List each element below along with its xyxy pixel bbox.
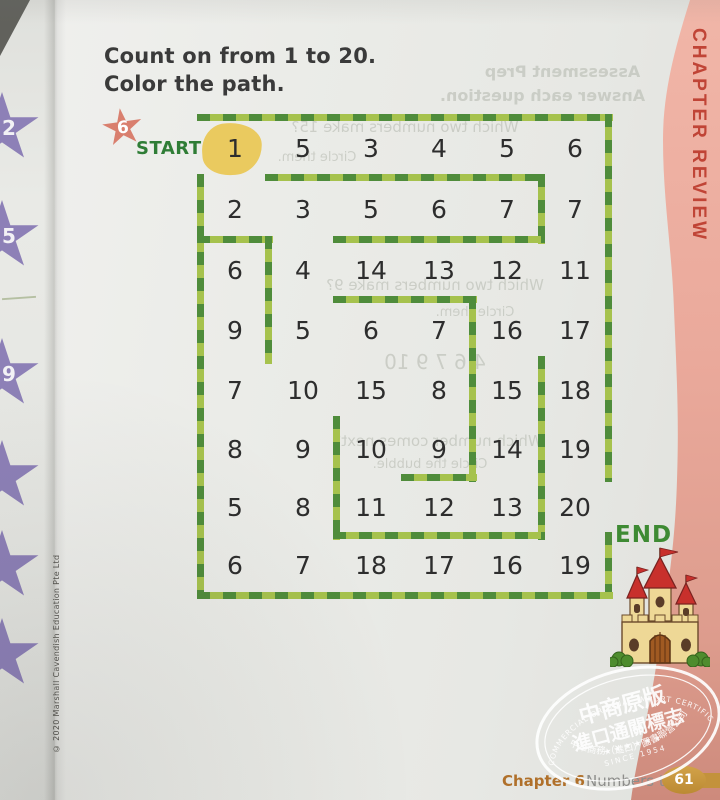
maze-cell-r3c3: 14 (337, 240, 405, 300)
maze-cell-r5c1: 7 (201, 360, 269, 420)
maze-cell-r8c2: 7 (269, 536, 337, 595)
maze-grid: 1534562356776414131211956716177101581518… (201, 118, 609, 595)
maze-cell-r1c3: 3 (337, 118, 405, 178)
copyright-text: © 2020 Marshall Cavendish Education Pte … (52, 588, 65, 753)
edge-star: 5 (0, 200, 40, 272)
maze-cell-r1c5: 5 (473, 118, 541, 178)
edge-line (2, 296, 36, 300)
maze-cell-r2c6: 7 (541, 178, 609, 240)
edge-star: 2 (0, 92, 40, 164)
maze-cell-r4c1: 9 (201, 300, 269, 360)
maze-cell-r4c4: 7 (405, 300, 473, 360)
number-maze: 1534562356776414131211956716177101581518… (201, 118, 609, 595)
maze-cell-r8c6: 19 (541, 536, 609, 595)
maze-cell-r7c4: 12 (405, 478, 473, 536)
maze-cell-r4c2: 5 (269, 300, 337, 360)
page-number: 61 (674, 772, 693, 788)
edge-star (0, 618, 40, 690)
edge-star: 9 (0, 338, 40, 410)
scanned-workbook-page: 259 © 2020 Marshall Cavendish Education … (0, 0, 720, 800)
page-title-line2: Color the path. (104, 72, 285, 96)
maze-cell-r1c6: 6 (541, 118, 609, 178)
maze-cell-r3c6: 11 (541, 240, 609, 300)
maze-cell-r3c1: 6 (201, 240, 269, 300)
castle-icon (610, 545, 710, 667)
maze-cell-r5c3: 15 (337, 360, 405, 420)
maze-cell-r7c1: 5 (201, 478, 269, 536)
maze-cell-r1c4: 4 (405, 118, 473, 178)
maze-cell-r8c5: 16 (473, 536, 541, 595)
maze-cell-r3c4: 13 (405, 240, 473, 300)
maze-cell-r2c5: 7 (473, 178, 541, 240)
maze-cell-r8c3: 18 (337, 536, 405, 595)
maze-cell-r5c2: 10 (269, 360, 337, 420)
maze-cell-r6c3: 10 (337, 420, 405, 478)
maze-cell-r1c2: 5 (269, 118, 337, 178)
maze-cell-r3c5: 12 (473, 240, 541, 300)
maze-cell-r7c3: 11 (337, 478, 405, 536)
maze-cell-r6c6: 19 (541, 420, 609, 478)
maze-cell-r7c2: 8 (269, 478, 337, 536)
edge-star-number: 5 (0, 224, 16, 248)
edge-star (0, 530, 40, 602)
maze-cell-r3c2: 4 (269, 240, 337, 300)
edge-star (0, 440, 40, 512)
maze-cell-r8c4: 17 (405, 536, 473, 595)
chapter-review-tab: CHAPTER REVIEW (687, 28, 709, 258)
maze-cell-r4c3: 6 (337, 300, 405, 360)
maze-cell-r5c6: 18 (541, 360, 609, 420)
maze-cell-r2c4: 6 (405, 178, 473, 240)
maze-cell-r4c5: 16 (473, 300, 541, 360)
exercise-number: 6 (116, 117, 129, 138)
start-label: START (136, 138, 202, 159)
maze-cell-r8c1: 6 (201, 536, 269, 595)
maze-cell-r5c4: 8 (405, 360, 473, 420)
edge-star-number: 2 (0, 116, 16, 140)
page-number-badge: 61 (662, 766, 706, 794)
maze-cell-r6c4: 9 (405, 420, 473, 478)
maze-cell-r7c6: 20 (541, 478, 609, 536)
maze-cell-r7c5: 13 (473, 478, 541, 536)
maze-cell-r2c2: 3 (269, 178, 337, 240)
edge-star-number: 9 (0, 362, 16, 386)
maze-cell-r1c1: 1 (201, 118, 269, 178)
page-title-line1: Count on from 1 to 20. (104, 44, 376, 68)
maze-cell-r2c1: 2 (201, 178, 269, 240)
maze-cell-r4c6: 17 (541, 300, 609, 360)
maze-cell-r5c5: 15 (473, 360, 541, 420)
maze-cell-r6c2: 9 (269, 420, 337, 478)
maze-cell-r2c3: 5 (337, 178, 405, 240)
maze-cell-r6c5: 14 (473, 420, 541, 478)
footer-chapter-label: Chapter 6 (502, 772, 585, 790)
maze-cell-r6c1: 8 (201, 420, 269, 478)
